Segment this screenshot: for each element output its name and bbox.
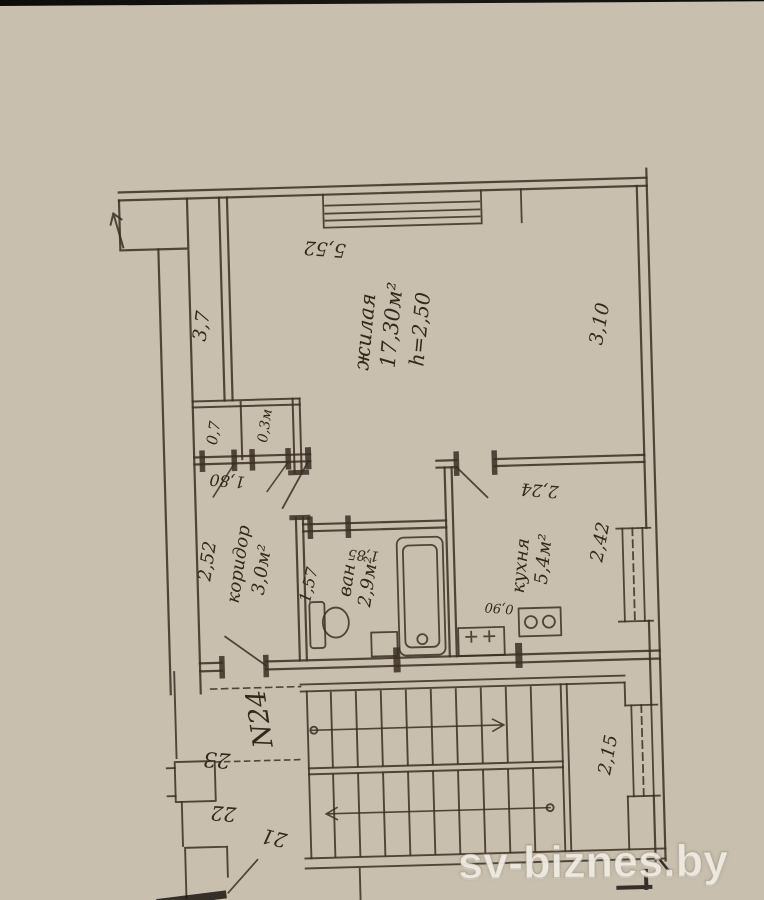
apartment-number: N24 (240, 688, 279, 751)
dim-bath-left: 1,57 (295, 565, 322, 605)
unit-22-label: 22 (210, 801, 238, 827)
kitchen-door-swing (457, 466, 488, 498)
entrance-door-swing (225, 636, 266, 667)
floor-plan-drawing: жилая 17,30м² h=2,50 5,52 3,7 3,10 0,7 0… (0, 0, 764, 900)
entrance-wall (199, 625, 660, 690)
dim-kitchen-window: 2,42 (586, 520, 614, 564)
bathroom-walls (303, 515, 446, 536)
toilet-icon (309, 601, 349, 648)
closets (193, 398, 303, 497)
kitchen-window (616, 528, 653, 622)
site-watermark: sv-biznes.by (458, 835, 729, 890)
dim-living-left: 3,7 (189, 309, 215, 343)
dim-bath-top: 1,85 (347, 546, 379, 564)
photo-of-floor-plan: { "watermark": "sv-biznes.by", "plan": {… (0, 0, 764, 900)
closet-left-area: 0,7 (203, 419, 224, 446)
kitchen-name: кухня (508, 537, 534, 594)
stairwell-window (625, 705, 660, 797)
closet-right-area: 0,3м (255, 408, 276, 444)
service-shafts (164, 669, 306, 899)
dim-stair-window: 2,15 (594, 733, 622, 777)
dim-corridor: 2,52 (194, 540, 221, 584)
living-room-walls (187, 195, 312, 510)
unit-23-label: 23 (203, 747, 232, 773)
unit-21-label: 21 (259, 824, 290, 853)
living-room-height: h=2,50 (404, 291, 435, 367)
dim-closet-doors: 1,80 (209, 470, 246, 492)
corridor-walls (290, 461, 312, 660)
sink-icon (458, 627, 505, 656)
dim-kitchen-front: 0,90 (484, 599, 514, 616)
dim-top-wall: 5,52 (303, 236, 347, 261)
corridor-area: 3,0м² (248, 543, 276, 596)
north-arrow-icon (110, 213, 123, 247)
dim-living-right: 3,10 (585, 301, 614, 347)
living-room-area: 17,30м² (376, 281, 408, 369)
stove-icon (519, 607, 562, 636)
bathtub-icon (397, 537, 446, 656)
kitchen-area: 5,4м² (531, 533, 557, 586)
dim-kitchen-top: 2,24 (520, 478, 560, 501)
